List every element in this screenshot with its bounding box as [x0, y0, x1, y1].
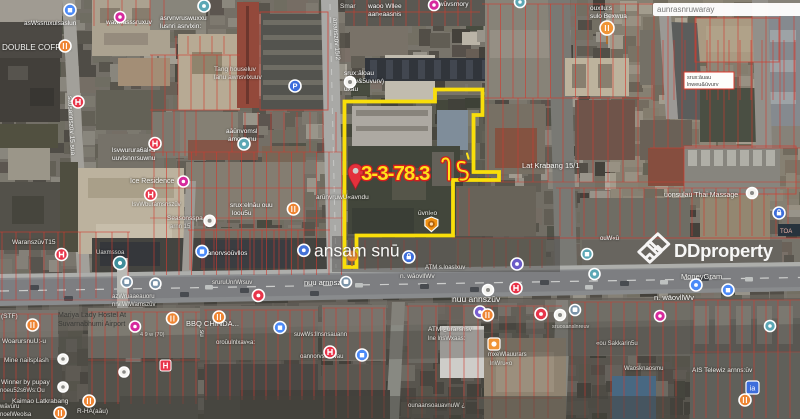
svg-text:P: P [292, 82, 297, 91]
svg-text:aan«aasnis: aan«aasnis [368, 11, 402, 18]
svg-text:WoarursnuU:-u: WoarursnuU:-u [2, 338, 46, 345]
svg-text:ūvnl«o: ūvnl«o [418, 210, 438, 217]
svg-text:H: H [163, 362, 169, 371]
svg-text:Winner by pupay: Winner by pupay [1, 379, 51, 386]
svg-text:TOA: TOA [780, 229, 792, 235]
svg-text:Waosknaosmu: Waosknaosmu [624, 366, 663, 372]
svg-text:srux:āuau: srux:āuau [687, 75, 711, 81]
svg-text:aāūnvomsl: aāūnvomsl [226, 128, 258, 135]
svg-text:arnn 15: arnn 15 [170, 224, 191, 230]
svg-text:Kaimao Latkrabang: Kaimao Latkrabang [12, 398, 69, 405]
svg-text:su: su [198, 330, 205, 337]
svg-text:aunrasnruwaray: aunrasnruwaray [657, 5, 714, 14]
svg-text:MoneyGram: MoneyGram [681, 272, 722, 281]
svg-text:noelWeolsa: noelWeolsa [0, 412, 32, 418]
svg-text:oannorvsouWau: oannorvsouWau [300, 354, 343, 360]
svg-text:Suvarnabhumi Airport: Suvarnabhumi Airport [58, 321, 125, 328]
svg-text:suwWs:llnsnsauann: suwWs:llnsnsauann [294, 332, 347, 338]
svg-text:lusnri asrvlxin:: lusnri asrvlxin: [160, 23, 201, 30]
svg-text:sruruUnrWrsuv: sruruUnrWrsuv [212, 280, 252, 286]
svg-text:BBQ CHINDA...: BBQ CHINDA... [186, 319, 239, 328]
svg-text:ansam snū: ansam snū [314, 241, 400, 261]
svg-text:lanu awnsvlxuuv: lanu awnsvlxuuv [214, 74, 262, 81]
svg-text:Tang houseluv: Tang houseluv [214, 66, 257, 73]
svg-text:Seasonsspa: Seasonsspa [167, 215, 203, 222]
svg-text:waoo Wllee: waoo Wllee [367, 3, 402, 10]
svg-text:ouxllu:s: ouxllu:s [590, 5, 613, 12]
svg-text:Mine nailsplash: Mine nailsplash [4, 357, 49, 364]
svg-text:mxeWlauurars: mxeWlauurars [488, 352, 527, 358]
svg-text:lnweu&ūvurv: lnweu&ūvurv [687, 82, 719, 88]
svg-text:loou5u: loou5u [232, 210, 252, 217]
svg-text:Mariya Lady Hostel At: Mariya Lady Hostel At [58, 312, 126, 319]
svg-text:uuvlsnnrsuwnu: uuvlsnnrsuwnu [112, 155, 156, 162]
svg-text:noeu52s6Ws:Ou: noeu52s6Ws:Ou [0, 388, 45, 394]
svg-text:srux:elnāu ouu: srux:elnāu ouu [230, 202, 273, 209]
svg-text:lsvWburamsnszūv: lsvWburamsnszūv [132, 202, 181, 208]
svg-text:lnWru«o: lnWru«o [490, 361, 513, 367]
svg-text:sruosanslnreuv: sruosanslnreuv [552, 324, 590, 330]
svg-text:azWruaaeauoru: azWruaaeauoru [112, 294, 155, 300]
svg-text:n. wāovllWv: n. wāovllWv [654, 293, 694, 302]
svg-text:n. wāovllWv: n. wāovllWv [400, 273, 435, 280]
svg-text:4 9 w (70): 4 9 w (70) [140, 332, 165, 338]
svg-text:wawnasssruxuv: wawnasssruxuv [105, 19, 153, 26]
svg-text:R-HA(aāu): R-HA(aāu) [77, 408, 108, 415]
svg-text:nrv WlWarnszūv: nrv WlWarnszūv [112, 302, 155, 308]
svg-text:Smar: Smar [340, 3, 356, 10]
svg-text:3-3-78.3: 3-3-78.3 [361, 162, 430, 185]
svg-text:AIS Telewiz arnns:ūv: AIS Telewiz arnns:ūv [692, 367, 753, 374]
svg-text:lsvwurura6al«s: lsvwurura6al«s [112, 147, 156, 154]
svg-text:asWssruxuisaslun: asWssruxuisaslun [24, 20, 77, 27]
svg-text:«ou Sakkarin5u: «ou Sakkarin5u [596, 341, 638, 347]
svg-text:arūnvruwU«avndu: arūnvruwU«avndu [316, 194, 369, 201]
svg-text:ouW«ū: ouW«ū [600, 236, 619, 242]
svg-text:(STF): (STF) [1, 313, 18, 320]
svg-text:Ice Residence: Ice Residence [130, 178, 174, 185]
svg-text:WaranszūvT15: WaranszūvT15 [12, 239, 56, 246]
svg-text:wāvūru: wāvūru [0, 404, 19, 410]
svg-text:Lat Krabang 15/1: Lat Krabang 15/1 [522, 161, 580, 170]
svg-text:ATM ¿urarsnsv: ATM ¿urarsnsv [428, 326, 473, 333]
svg-text:ounaansoauavnuW ¿: ounaansoauavnuW ¿ [408, 403, 465, 409]
svg-text:sulo Bexwua: sulo Bexwua [590, 13, 627, 20]
svg-text:ia: ia [750, 386, 756, 393]
svg-text:DDproperty: DDproperty [674, 240, 774, 261]
svg-text:oroūulnlxav«a:: oroūulnlxav«a: [216, 340, 255, 346]
svg-text:asrvnvruswuxxu: asrvnvruswuxxu [160, 15, 207, 22]
svg-text:oanorvsoūvllos: oanorvsoūvllos [204, 250, 248, 257]
svg-text:ATM s.loaslxuv: ATM s.loaslxuv [425, 265, 465, 271]
svg-text:uonsulau Thai Massage: uonsulau Thai Massage [664, 192, 738, 199]
svg-text:lne lnsWxaas:: lne lnsWxaas: [428, 336, 466, 342]
svg-text:nuu annszūv: nuu annszūv [452, 294, 501, 304]
